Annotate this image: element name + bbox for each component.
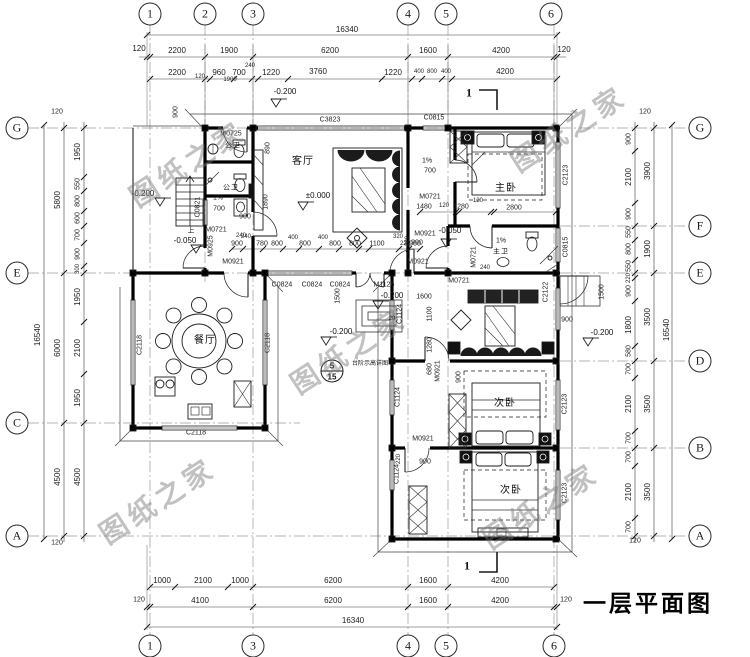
opening-code-label: M1126 <box>374 282 395 289</box>
dim-label: 120 <box>473 198 483 204</box>
dim-label: 1% <box>496 238 506 245</box>
tv-stand <box>497 529 506 536</box>
dim-label: 400 <box>414 69 424 75</box>
eave-corner-tick <box>185 109 203 128</box>
dim-label: 1600 <box>419 597 437 605</box>
column <box>553 270 559 276</box>
dim-label: 120 <box>557 46 570 54</box>
opening-code-label: C2123 <box>562 483 569 504</box>
pillow <box>505 453 531 466</box>
floor-plan-page: 1634012022001900620016004200120220012096… <box>0 0 750 657</box>
washbasin <box>237 202 245 212</box>
room-label: 公卫 <box>225 143 241 150</box>
dim-label: 900 <box>561 317 573 324</box>
level-label: -0.200 <box>381 292 404 300</box>
dim-label: 550 <box>626 226 633 238</box>
dim-label: 320 <box>393 234 403 240</box>
pillow <box>507 134 534 147</box>
level-label: -0.200 <box>274 88 297 96</box>
dim-label: 1950 <box>74 288 82 306</box>
side-porch <box>560 276 600 306</box>
axis-marker: B <box>689 437 712 460</box>
dim-label: 800 <box>427 69 437 75</box>
opening-code-label: C2123 <box>562 394 569 415</box>
dining-chair <box>192 370 207 385</box>
column <box>553 536 559 542</box>
washbasin <box>497 258 509 267</box>
level-label: -0.050 <box>439 227 462 235</box>
nightstand <box>532 131 545 144</box>
sofa-seat <box>461 348 477 356</box>
nightstand <box>539 433 551 445</box>
dim-label: 300 <box>75 264 81 274</box>
dim-label: 1% <box>422 158 432 165</box>
sofa-seat <box>509 348 525 356</box>
dim-label: 800 <box>271 241 283 248</box>
level-triangle <box>191 245 201 253</box>
column <box>389 358 395 364</box>
dim-label: 2100 <box>625 168 633 186</box>
dim-label: 2800 <box>506 205 522 212</box>
column <box>405 270 411 276</box>
dim-label: 900 <box>75 248 82 260</box>
nightstand <box>461 131 474 144</box>
dim-label: 20 <box>389 316 396 322</box>
column <box>202 125 208 131</box>
room-label: 次卧 <box>494 399 516 409</box>
entry-steps <box>368 312 390 320</box>
dim-label: 120 <box>133 597 145 604</box>
coffee-table-hatch <box>360 168 385 204</box>
column <box>130 425 136 431</box>
sofa-seat <box>393 183 400 198</box>
dim-label: 800 <box>329 241 341 248</box>
stove-burner <box>156 380 164 388</box>
tv-set <box>249 184 254 198</box>
axis-marker: E <box>6 262 29 285</box>
room-label: 主卧 <box>495 184 517 194</box>
axis-marker: 4 <box>397 3 420 26</box>
dim-label: 800 <box>626 243 633 255</box>
axis-marker: 5 <box>435 3 458 26</box>
tv-cabinet <box>254 175 263 185</box>
sofa-seat <box>393 215 400 230</box>
dim-label: 900 <box>411 240 423 247</box>
sofa-seat <box>525 348 541 356</box>
dim-label: 1950 <box>74 389 82 407</box>
opening-code-label: M0721 <box>448 278 469 285</box>
opening-code-label: M0721 <box>419 194 440 201</box>
level-label: -0.200 <box>132 190 155 198</box>
column <box>553 445 559 451</box>
column <box>389 536 395 542</box>
section-mark-label: 1 <box>464 559 470 574</box>
dim-label: 4200 <box>496 68 514 76</box>
dim-label: 900 <box>626 208 633 220</box>
coffee-table-hatch <box>352 176 377 212</box>
armchair <box>451 310 471 330</box>
dim-label: 4200 <box>491 597 509 605</box>
axis-marker: G <box>689 117 712 140</box>
dim-label: 16540 <box>34 324 42 346</box>
media-cabinet <box>468 290 538 303</box>
dim-label: 220 <box>405 236 411 246</box>
dim-label: 220 <box>626 273 632 283</box>
axis-marker: G <box>6 117 29 140</box>
dim-label: 400 <box>441 69 451 75</box>
dim-label: 900 <box>419 459 431 466</box>
column <box>202 270 208 276</box>
dim-label: 680 <box>427 363 434 375</box>
opening-code-label: C1124 <box>395 387 402 407</box>
dim-label: 400 <box>318 235 328 241</box>
dim-label: 700 <box>626 451 633 463</box>
dim-label: 1100 <box>427 306 434 321</box>
dim-label: 550 <box>75 178 82 190</box>
dim-label: 3500 <box>644 483 652 501</box>
room-label: 次卧 <box>500 486 522 496</box>
room-label: 公卫 <box>223 185 239 192</box>
door-swing <box>470 226 492 248</box>
dim-label: 700 <box>626 363 633 375</box>
section-mark <box>479 90 497 110</box>
stove-burner <box>166 380 174 388</box>
nightstand <box>460 451 472 463</box>
pillow <box>476 453 502 466</box>
column <box>405 125 411 131</box>
opening-code-label: C2118 <box>265 333 272 353</box>
sofa-seat <box>338 150 364 161</box>
side-table <box>448 342 460 354</box>
axis-marker: C <box>6 412 29 435</box>
dim-label: 240 <box>236 233 246 239</box>
opening-code-label: C0824 <box>302 282 323 289</box>
column <box>262 425 268 431</box>
level-triangle <box>583 338 593 346</box>
level-triangle <box>298 202 308 210</box>
axis-marker: 6 <box>540 3 563 26</box>
dim-label: 1800 <box>625 316 633 334</box>
dim-label: 2100 <box>194 577 212 585</box>
dim-label: 6200 <box>321 47 339 55</box>
axis-marker: 1 <box>139 635 162 657</box>
dim-label: 1000 <box>153 577 171 585</box>
level-label: -0.200 <box>330 328 353 336</box>
level-label: -0.200 <box>591 329 614 337</box>
dim-label: 890 <box>265 142 272 154</box>
opening-code-label: C0824 <box>272 282 293 289</box>
axis-marker: D <box>689 350 712 373</box>
dim-label: 900 <box>456 371 463 383</box>
dim-label: 120 <box>560 597 572 604</box>
dim-label: 1600 <box>419 577 437 585</box>
section-mark <box>479 552 497 572</box>
dim-label: 2200 <box>168 69 186 77</box>
sofa-seat <box>393 199 400 214</box>
door-swing <box>356 273 370 287</box>
axis-marker: E <box>689 262 712 285</box>
dim-label: 700 <box>213 206 225 213</box>
axis-marker: 3 <box>242 3 265 26</box>
dim-label: 700 <box>626 521 633 533</box>
opening-code-label: C0815 <box>424 115 445 122</box>
level-triangle <box>155 198 165 206</box>
opening-code-label: M0921 <box>222 259 243 266</box>
dim-label: 1% <box>213 195 223 202</box>
opening-code-label: C2122 <box>543 282 550 303</box>
dim-label: 900 <box>173 106 180 118</box>
dim-label: 120 <box>639 109 651 116</box>
coffee-table <box>352 168 385 212</box>
dim-label: 3500 <box>644 395 652 413</box>
dim-label: 1220 <box>262 69 280 77</box>
opening-code-label: C3823 <box>320 117 341 124</box>
tv-screen <box>485 306 515 346</box>
dim-label: 1890 <box>263 194 270 210</box>
dim-label: 780 <box>256 241 268 248</box>
dim-label: 900 <box>239 214 251 221</box>
detail-ref-number: 15 <box>328 373 337 382</box>
opening-code-label: C2118 <box>186 430 206 437</box>
column <box>553 358 559 364</box>
opening-code-label: C1124 <box>397 304 404 324</box>
dim-label: 16340 <box>342 617 364 625</box>
column <box>250 270 256 276</box>
kitchen-sink <box>191 407 199 415</box>
dim-label: 2100 <box>625 483 633 501</box>
eave-corner-tick <box>558 109 577 128</box>
dim-label: 120 <box>195 74 205 80</box>
dim-label: 1900 <box>223 77 236 83</box>
dim-label: 1950 <box>74 143 82 161</box>
opening-code-label: M0721 <box>471 246 478 267</box>
detail-ref-number: 5 <box>330 362 334 371</box>
dim-label: 120 <box>132 45 145 53</box>
dim-label: 4200 <box>491 577 509 585</box>
dim-label: 1500 <box>599 284 606 300</box>
dim-label: 700 <box>232 69 245 77</box>
opening-code-label: C0815 <box>563 237 570 258</box>
dim-label: 1480 <box>416 204 432 211</box>
column <box>389 445 395 451</box>
dim-label: 3900 <box>644 162 652 180</box>
kitchen-sink <box>188 404 212 419</box>
dim-label: 16340 <box>336 26 358 34</box>
axis-marker: A <box>6 525 29 548</box>
dim-label: 2100 <box>74 339 82 357</box>
dim-label: 400 <box>288 235 298 241</box>
dim-label: 1600 <box>419 47 437 55</box>
opening-code-label: C2118 <box>137 335 144 355</box>
dim-label: 800 <box>75 195 82 207</box>
toilet <box>527 237 537 251</box>
dim-label: 1500 <box>335 288 342 304</box>
dim-label: 900 <box>626 133 633 145</box>
dim-label: 2100 <box>625 395 633 413</box>
room-label: 客厅 <box>292 157 314 167</box>
note-label: 上 <box>188 228 195 235</box>
dim-label: 800 <box>299 241 311 248</box>
column <box>262 270 268 276</box>
level-label: ±0.000 <box>306 192 330 200</box>
opening-code-label: M0921 <box>414 231 435 238</box>
dim-label: 240 <box>480 265 490 271</box>
dim-label: 4500 <box>54 468 62 486</box>
stove <box>155 377 175 396</box>
tv-screen-hatch <box>485 328 503 346</box>
dim-label: 580 <box>626 345 633 357</box>
dim-label: 900 <box>626 285 633 297</box>
axis-marker: 5 <box>435 635 458 657</box>
dim-label: 1280 <box>453 204 469 211</box>
dim-label: 700 <box>626 432 633 444</box>
column <box>445 125 451 131</box>
dim-label: 900 <box>231 241 243 248</box>
section-mark-label: 1 <box>466 86 472 101</box>
dim-label: 1600 <box>416 294 432 301</box>
door-swing <box>426 246 448 268</box>
dim-label: 6000 <box>54 339 62 357</box>
dim-label: 550 <box>626 260 633 272</box>
dim-label: 120 <box>629 538 641 545</box>
level-triangle <box>321 337 331 345</box>
kitchen-sink <box>202 407 210 415</box>
dim-label: 1900 <box>220 47 238 55</box>
dining-chair <box>166 359 181 374</box>
dim-label: 1900 <box>644 240 652 258</box>
dim-label: 6200 <box>324 597 342 605</box>
dim-label: 700 <box>75 229 82 241</box>
dining-chair <box>166 308 181 323</box>
drawing-title: 一层平面图 <box>583 584 713 618</box>
axis-marker: 6 <box>543 635 566 657</box>
dim-label: 4500 <box>74 468 82 486</box>
opening-code-label: M0921 <box>435 360 442 381</box>
dim-label: 3760 <box>309 68 327 76</box>
dim-label: 1220 <box>384 69 402 77</box>
shower <box>540 246 558 264</box>
column <box>389 270 395 276</box>
opening-code-label: C0821 <box>195 197 202 218</box>
axis-marker: F <box>689 215 712 238</box>
column <box>553 125 559 131</box>
sofa-seat <box>366 150 392 161</box>
dim-label: 960 <box>212 69 225 77</box>
nightstand <box>537 451 549 463</box>
column <box>250 125 256 131</box>
sofa-seat <box>393 167 400 182</box>
opening-code-label: C2123 <box>563 165 570 186</box>
opening-code-label: C1124 <box>394 464 401 484</box>
dining-chair <box>156 334 171 349</box>
pillow <box>506 431 533 444</box>
opening-code-label: M0921 <box>407 259 428 266</box>
dim-label: 5800 <box>54 191 62 209</box>
dim-label: 220 <box>396 454 402 464</box>
door-swing <box>253 212 277 236</box>
pillow <box>477 134 504 147</box>
tv-screen-hatch <box>485 312 509 346</box>
shower-drain <box>548 256 552 260</box>
dining-chair <box>192 298 207 313</box>
nightstand <box>459 433 471 445</box>
door-swing <box>224 273 248 297</box>
room-label: 餐厅 <box>194 336 216 346</box>
axis-marker: 2 <box>194 3 217 26</box>
dim-label: 6200 <box>324 577 342 585</box>
dining-chair <box>217 308 232 323</box>
axis-marker: 4 <box>397 635 420 657</box>
dim-label: 1000 <box>231 577 249 585</box>
dim-label: 3500 <box>644 308 652 326</box>
level-label: -0.050 <box>174 237 197 245</box>
sofa-seat <box>393 151 400 166</box>
dim-label: 120 <box>439 203 449 209</box>
level-triangle <box>271 99 281 107</box>
sofa-seat <box>493 348 509 356</box>
tv-cabinet <box>254 150 263 230</box>
axis-marker: 1 <box>139 3 162 26</box>
dining-chair <box>228 334 243 349</box>
axis-marker: A <box>689 525 712 548</box>
dim-label: 800 <box>349 241 361 248</box>
dim-label: 120 <box>51 109 63 116</box>
dining-chair <box>217 359 232 374</box>
opening-code-label: C0824 <box>330 282 351 289</box>
room-label: 主卫 <box>493 249 509 256</box>
dim-label: 1100 <box>369 241 384 248</box>
column <box>445 270 451 276</box>
sofa-group <box>333 148 402 232</box>
dim-label: 1280 <box>427 337 434 353</box>
opening-code-label: M0721 <box>205 227 226 234</box>
tv-screen-hatch <box>493 306 515 334</box>
opening-code-label: M0725 <box>220 131 241 138</box>
floor-plan-drawing <box>0 0 750 657</box>
coffee-table-hatch <box>352 196 368 212</box>
dim-label: 700 <box>424 168 436 175</box>
dim-label: 600 <box>75 212 82 224</box>
pillow <box>476 431 503 444</box>
eave-corner-tick <box>558 539 577 557</box>
dim-label: 4200 <box>492 47 510 55</box>
dim-label: 4100 <box>191 597 209 605</box>
note-label: 台阶示高详图 <box>352 361 388 367</box>
opening-code-label: M0925 <box>208 235 215 256</box>
axis-marker: 3 <box>242 635 265 657</box>
dim-label: 120 <box>51 540 63 547</box>
dim-label: 16540 <box>663 319 671 341</box>
tv-cabinet <box>254 155 263 165</box>
side-table <box>542 342 554 354</box>
sofa-seat <box>477 348 493 356</box>
dim-label: 240 <box>245 63 255 69</box>
opening-code-label: M0921 <box>412 436 433 443</box>
dim-label: 2200 <box>168 47 186 55</box>
